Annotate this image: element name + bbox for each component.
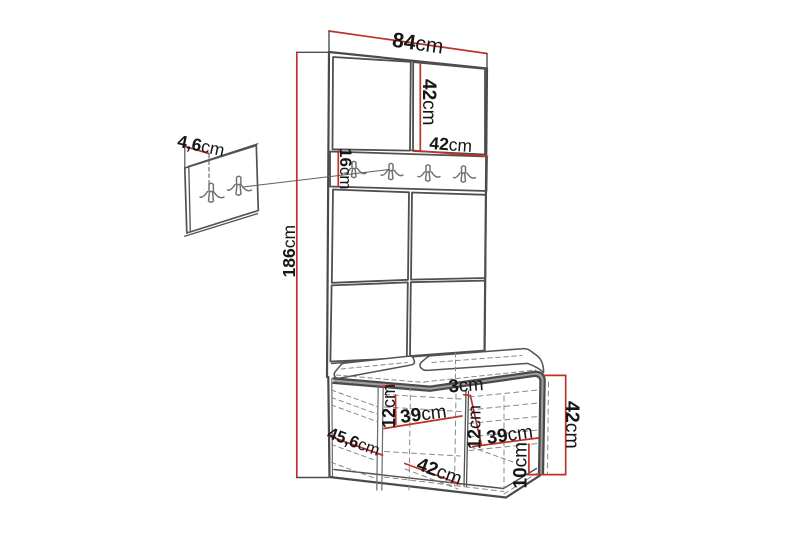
svg-text:4,6cm: 4,6cm	[176, 131, 227, 160]
svg-text:16cm: 16cm	[336, 148, 355, 190]
svg-text:42cm: 42cm	[414, 454, 465, 490]
svg-text:12cm: 12cm	[379, 384, 399, 428]
svg-text:42cm: 42cm	[429, 133, 473, 156]
svg-text:12cm: 12cm	[465, 405, 485, 449]
svg-text:3cm: 3cm	[448, 373, 484, 396]
svg-text:42cm: 42cm	[561, 401, 583, 449]
svg-text:186cm: 186cm	[279, 225, 299, 278]
svg-text:45,6cm: 45,6cm	[325, 424, 382, 459]
svg-text:84cm: 84cm	[391, 29, 445, 59]
svg-text:39cm: 39cm	[399, 401, 448, 428]
svg-text:42cm: 42cm	[418, 79, 439, 125]
svg-text:10cm: 10cm	[511, 442, 532, 488]
